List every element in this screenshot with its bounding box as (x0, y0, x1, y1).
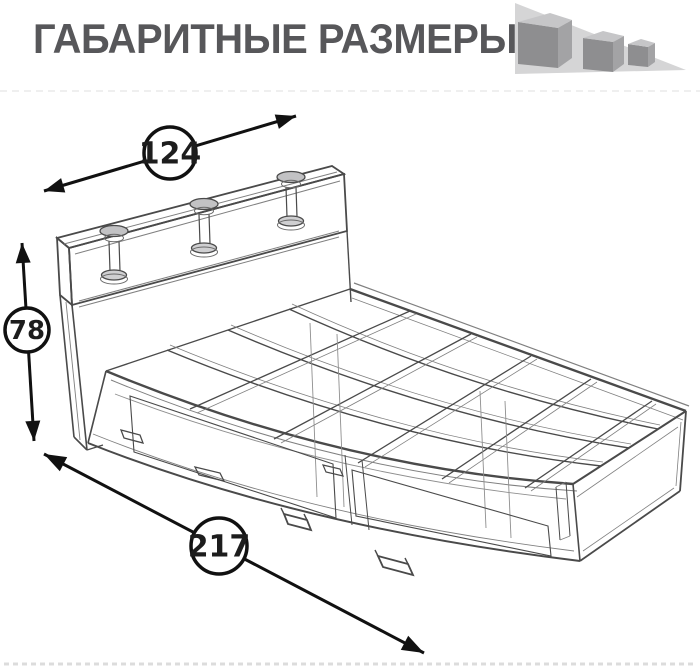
dimension-width-callout: 124 (44, 115, 296, 193)
headboard-spool-1 (100, 226, 128, 285)
arrowhead-icon (16, 243, 31, 263)
foot-panel (556, 411, 686, 561)
arrowhead-icon (44, 454, 67, 471)
bed-wireframe-drawing: 124 78 217 (0, 0, 700, 669)
dimension-width-value: 124 (139, 137, 202, 172)
headboard-spool-3 (277, 172, 305, 231)
platform-frame (106, 283, 689, 491)
internal-structure (115, 323, 566, 538)
dimension-length-value: 217 (188, 530, 251, 565)
arrowhead-icon (401, 636, 424, 653)
arrowhead-icon (44, 178, 65, 192)
drawer-front-left (130, 396, 336, 518)
front-face (88, 371, 580, 561)
page: ГАБАРИТНЫЕ РАЗМЕРЫ (0, 0, 700, 669)
arrowhead-icon (25, 421, 40, 442)
headboard-spool-2 (190, 199, 218, 258)
drawer-handle-2 (375, 550, 413, 575)
dimension-height-callout: 78 (5, 243, 49, 441)
dimension-length-callout: 217 (44, 454, 424, 653)
dimension-height-value: 78 (9, 316, 45, 346)
arrowhead-icon (275, 115, 296, 129)
